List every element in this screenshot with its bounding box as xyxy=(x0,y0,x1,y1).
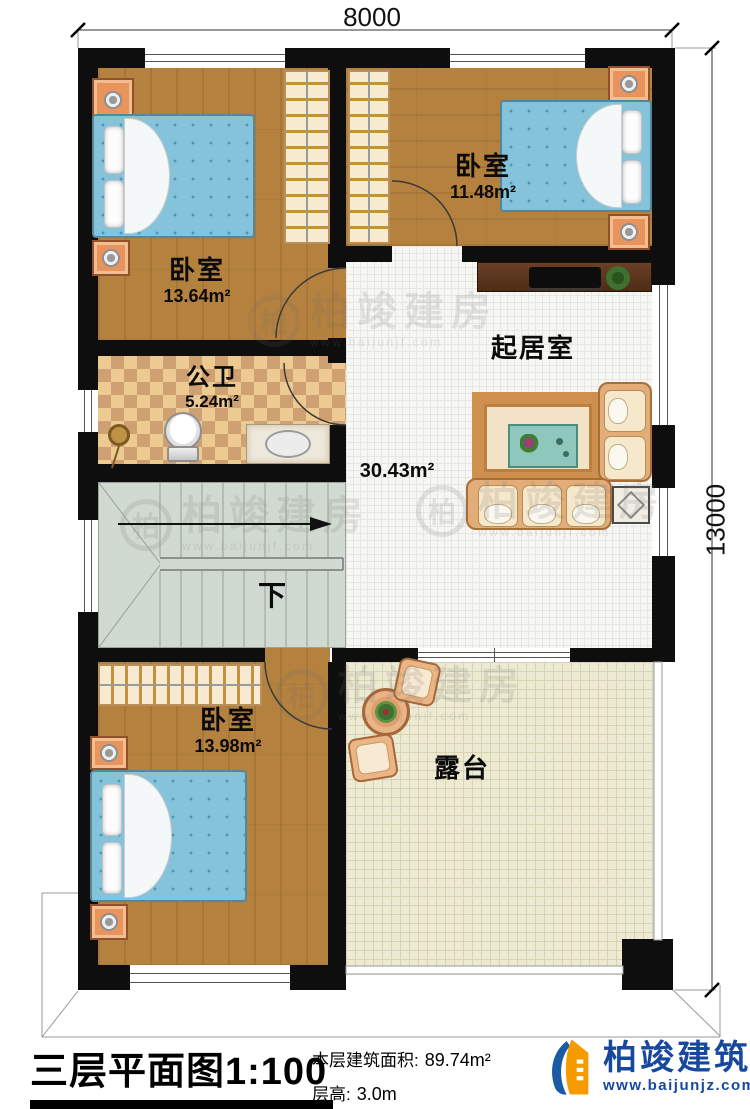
plant-icon xyxy=(606,266,630,290)
window xyxy=(652,285,675,425)
throw-pillow xyxy=(608,398,628,424)
stairs-down-label: 下 xyxy=(258,580,288,612)
sliding-door xyxy=(418,648,570,662)
dimension-height: 13000 xyxy=(701,484,732,556)
coffee-table xyxy=(508,424,578,468)
bedroom-3-label: 卧室 13.98m² xyxy=(194,706,261,757)
room-area: 13.64m² xyxy=(163,286,230,307)
wall-interior xyxy=(328,48,346,268)
sofa xyxy=(466,478,612,530)
tv-console xyxy=(477,262,652,292)
chair-cushion xyxy=(400,664,434,699)
room-area: 30.43m² xyxy=(360,460,435,483)
room-area: 13.98m² xyxy=(194,736,261,757)
floor-height-value: 3.0m xyxy=(357,1084,397,1104)
room-area: 5.24m² xyxy=(185,392,239,412)
room-name: 公卫 xyxy=(185,364,239,392)
pillow xyxy=(622,160,642,204)
terrace-chair xyxy=(347,733,399,784)
throw-pillow xyxy=(608,444,628,470)
room-area: 11.48m² xyxy=(450,182,516,203)
company-logo: 柏竣建筑 www.baijunjz.com xyxy=(545,1036,750,1098)
room-name: 起居室 xyxy=(491,334,575,364)
window xyxy=(145,48,285,68)
nightstand xyxy=(90,904,128,940)
nightstand xyxy=(608,214,650,250)
room-name: 露台 xyxy=(434,754,490,784)
flower-icon xyxy=(520,434,542,454)
company-logo-icon xyxy=(545,1036,595,1098)
wall-interior xyxy=(328,662,346,990)
terrace-column xyxy=(622,939,673,990)
lamp-icon xyxy=(616,71,642,97)
tv-icon xyxy=(529,267,601,288)
lamp-icon xyxy=(96,909,122,935)
living-room-area-label: 30.43m² xyxy=(360,460,435,483)
lamp-icon xyxy=(96,740,122,766)
room-name: 卧室 xyxy=(163,256,230,286)
duvet xyxy=(576,104,622,208)
window xyxy=(450,48,585,68)
duvet xyxy=(124,774,172,898)
wardrobe xyxy=(284,70,330,244)
room-name: 卧室 xyxy=(194,706,261,736)
lamp-icon xyxy=(616,219,642,245)
company-website: www.baijunjz.com xyxy=(603,1077,750,1094)
nightstand xyxy=(92,240,130,276)
double-bed xyxy=(500,100,652,212)
wall-interior xyxy=(78,464,346,482)
wall-interior xyxy=(78,648,265,662)
decor-dot xyxy=(556,438,563,445)
toilet-tank xyxy=(167,446,199,462)
floor-height-label: 层高: xyxy=(312,1085,351,1104)
nightstand xyxy=(90,736,128,770)
stairs-area xyxy=(98,482,346,648)
pillow xyxy=(102,842,122,894)
terrace-chair xyxy=(392,656,442,708)
sink xyxy=(265,430,311,458)
stairs-direction: 下 xyxy=(258,580,288,612)
sofa xyxy=(598,382,652,482)
floor-plan: 柏 柏竣建房 www.baijunjf.com 柏 柏竣建房 www.baiju… xyxy=(0,0,750,1109)
throw-pillow xyxy=(528,504,556,524)
side-table xyxy=(612,486,650,524)
pillow xyxy=(104,126,124,174)
floor-area-label: 本层建筑面积: xyxy=(312,1051,419,1070)
window xyxy=(130,965,290,990)
room-name: 卧室 xyxy=(450,152,516,182)
sliding-door-divider xyxy=(494,648,495,662)
throw-pillow xyxy=(484,504,512,524)
window xyxy=(78,520,98,612)
side-table-inlay xyxy=(617,491,645,519)
plant-icon xyxy=(375,701,397,723)
nightstand xyxy=(608,66,650,102)
pillow xyxy=(622,110,642,154)
pillow xyxy=(102,784,122,836)
floor-drain-icon xyxy=(108,424,130,446)
double-bed xyxy=(92,114,255,238)
decor-dot xyxy=(563,451,569,457)
duvet xyxy=(124,118,170,234)
window xyxy=(78,390,98,432)
terrace-label: 露台 xyxy=(434,754,490,784)
floor-area-value: 89.74m² xyxy=(425,1050,491,1070)
throw-pillow xyxy=(572,504,600,524)
living-room-label: 起居室 xyxy=(491,334,575,364)
wardrobe xyxy=(98,664,262,706)
lamp-icon xyxy=(98,245,124,271)
company-name: 柏竣建筑 xyxy=(603,1040,750,1077)
plan-title: 三层平面图1:100 xyxy=(30,1040,333,1109)
lamp-icon xyxy=(100,87,126,113)
pillow xyxy=(104,180,124,228)
double-bed xyxy=(90,770,247,902)
window xyxy=(652,488,675,556)
bedroom-2-label: 卧室 11.48m² xyxy=(450,152,516,203)
wall-interior xyxy=(346,246,392,262)
plan-info: 本层建筑面积:89.74m² 层高:3.0m xyxy=(312,1046,491,1109)
toilet xyxy=(164,412,202,450)
wall-interior xyxy=(570,648,652,662)
wardrobe xyxy=(348,70,390,244)
wall-interior xyxy=(78,340,346,356)
bathroom-label: 公卫 5.24m² xyxy=(185,364,239,411)
vanity-counter xyxy=(246,424,330,464)
chair-cushion xyxy=(355,741,391,776)
dimension-width: 8000 xyxy=(343,2,401,33)
bedroom-1-label: 卧室 13.64m² xyxy=(163,256,230,307)
